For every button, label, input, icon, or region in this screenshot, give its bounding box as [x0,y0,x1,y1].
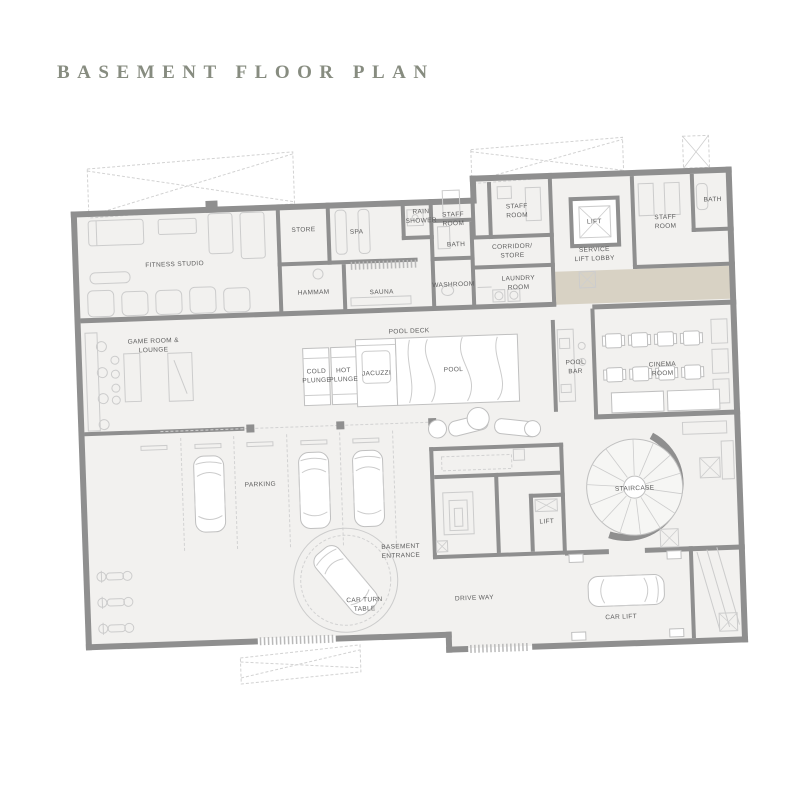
room-label-staff-room-c: STAFF [654,214,676,222]
room-label-staff-room-b: STAFF [506,203,528,211]
svg-text:ROOM: ROOM [652,370,674,378]
svg-text:LIFT LOBBY: LIFT LOBBY [574,255,615,263]
room-label-sauna: SAUNA [370,288,395,296]
svg-text:PLUNGE: PLUNGE [329,376,358,384]
room-label-store: STORE [291,226,316,234]
floor-plan: FITNESS STUDIO STORE SPA RAIN SHOWER STA… [0,0,800,800]
svg-text:ENTRANCE: ENTRANCE [382,552,421,560]
room-label-pool: POOL [444,366,464,374]
room-label-cold-plunge: COLD [307,368,327,376]
room-label-pool-bar: POOL [565,359,585,367]
room-label-parking: PARKING [245,481,276,489]
room-label-rain-shower: RAIN [412,208,429,216]
svg-text:LOUNGE: LOUNGE [139,346,169,354]
room-label-laundry-room: LAUNDRY [501,274,535,282]
room-label-hammam: HAMMAM [298,289,330,297]
room-label-hot-plunge: HOT [336,367,351,375]
room-label-spa: SPA [350,228,364,235]
room-label-basement-entrance: BASEMENT [381,543,420,551]
room-label-staff-room-a: STAFF [442,211,464,219]
room-label-corridor-store: CORRIDOR/ [492,243,533,251]
svg-text:TABLE: TABLE [354,605,376,613]
svg-text:ROOM: ROOM [442,220,464,228]
room-label-staircase: STAIRCASE [615,484,655,492]
svg-text:SHOWER: SHOWER [405,217,437,225]
room-label-bath-b: BATH [703,196,721,204]
room-label-service-lift-lobby: SERVICE [579,246,610,254]
svg-text:STORE: STORE [500,252,525,260]
room-label-cinema-room: CINEMA [649,361,677,369]
room-label-car-lift: CAR LIFT [605,613,637,621]
svg-text:ROOM: ROOM [506,212,528,220]
room-label-lift-service: LIFT [587,218,602,226]
svg-text:PLUNGE: PLUNGE [302,377,331,385]
room-label-jacuzzi: JACUZZI [362,370,391,378]
svg-text:BAR: BAR [568,368,583,375]
room-label-bath-a: BATH [447,241,465,249]
room-label-drive-way: DRIVE WAY [455,594,494,602]
room-label-pool-deck: POOL DECK [389,327,430,335]
svg-text:ROOM: ROOM [508,284,530,292]
room-label-car-turn-table: CAR TURN [346,596,382,604]
room-label-washroom: WASHROOM [432,281,474,289]
room-label-lift-lower: LIFT [539,518,554,526]
svg-text:ROOM: ROOM [655,223,677,231]
